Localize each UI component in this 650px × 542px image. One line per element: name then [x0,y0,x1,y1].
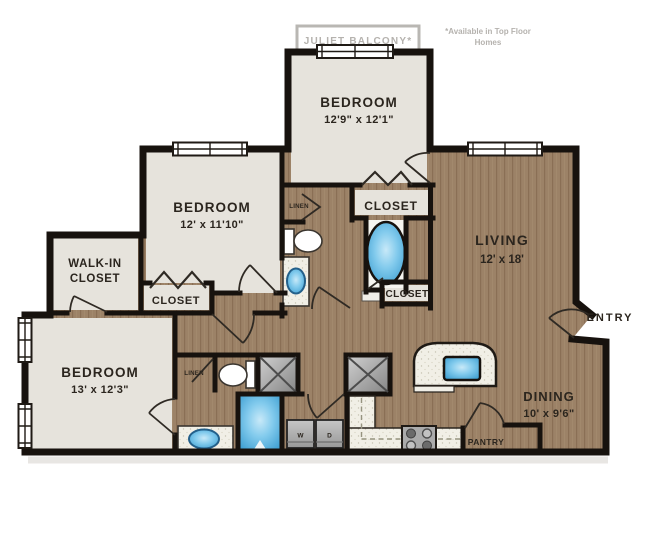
availability-note-line2: Homes [475,38,502,47]
bedroom-bottom-dims: 13' x 12'3" [71,384,129,396]
closet-upper-label: CLOSET [364,199,417,213]
living-name: LIVING [475,232,529,248]
bedroom-bottom-name: BEDROOM [61,365,139,380]
bedroom-top-name: BEDROOM [320,95,398,110]
floorplan-page: JULIET BALCONY* *Available in Top Floor … [0,0,650,542]
living-dims: 12' x 18' [480,254,524,266]
island-sink [444,357,480,380]
bedroom-mid-dims: 12' x 11'10" [180,219,244,231]
availability-note-line1: *Available in Top Floor [445,27,531,36]
bedroom-mid-name: BEDROOM [173,200,251,215]
dining-name: DINING [523,389,575,404]
sink-lower [189,430,219,449]
stove-burner [407,429,416,438]
washer-label: W [297,433,304,440]
toilet-lower-bowl [219,364,247,386]
juliet-balcony-label: JULIET BALCONY* [304,36,413,47]
entry-label: ENTRY [587,312,634,324]
pantry-label: PANTRY [468,437,504,447]
stove-burner [423,429,432,438]
window-bedroom-mid [173,143,247,156]
floor-shadow [28,457,608,464]
toilet-upper-tank [284,229,294,254]
closet-mid-label: CLOSET [386,289,429,300]
window-bedroom-bottom-2 [19,404,32,448]
closet2-label: CLOSET [152,295,200,307]
sink-upper [287,269,305,294]
island-step [414,386,454,392]
linen-lower-label: LINEN [184,370,204,377]
toilet-upper-bowl [294,230,322,252]
linen-upper-label: LINEN [289,203,309,210]
window-living [468,143,542,156]
dining-dims: 10' x 9'6" [523,408,574,420]
floorplan-svg: JULIET BALCONY* *Available in Top Floor … [0,0,650,542]
window-bedroom-bottom-1 [19,318,32,362]
walk-in-closet-label-1: WALK-IN [68,258,121,270]
bathtub [367,222,405,284]
bedroom-top-dims: 12'9" x 12'1" [324,114,394,126]
dryer-label: D [327,433,332,440]
walk-in-closet-label-2: CLOSET [70,273,120,285]
